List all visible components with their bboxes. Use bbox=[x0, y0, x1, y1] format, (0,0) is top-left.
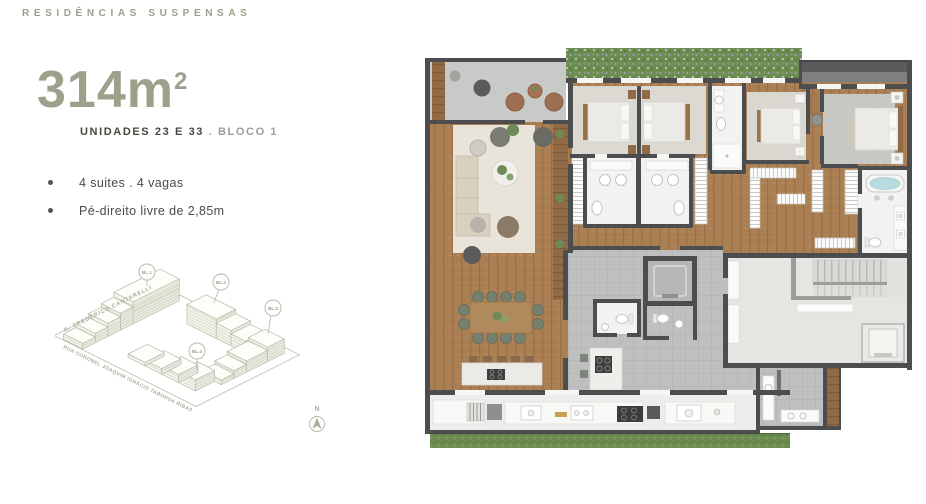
block-label-bl2: BL.2 bbox=[213, 274, 229, 303]
block-label-bl3: BL.3 bbox=[265, 300, 281, 334]
service-balcony bbox=[430, 395, 760, 430]
terrace-top-right bbox=[802, 62, 908, 84]
bedroom-2 bbox=[641, 86, 706, 154]
feature-ceiling: Pé-direito livre de 2,85m bbox=[48, 204, 224, 218]
bullet-icon bbox=[48, 208, 53, 213]
terrace-top-left bbox=[425, 60, 566, 122]
brand-header: RESIDÊNCIAS SUSPENSAS bbox=[22, 8, 251, 19]
units-line: UNIDADES 23 E 33 . BLOCO 1 bbox=[80, 126, 278, 138]
area-title: 314m2 bbox=[37, 64, 188, 116]
block-label: . BLOCO 1 bbox=[209, 126, 278, 138]
bullet-icon bbox=[48, 180, 53, 185]
area-exponent: 2 bbox=[174, 68, 188, 95]
svg-text:BL.1: BL.1 bbox=[142, 270, 152, 275]
bedroom-1 bbox=[572, 86, 637, 154]
iso-buildings bbox=[55, 269, 299, 406]
corridor-bathroom bbox=[712, 86, 742, 170]
hedge bbox=[430, 433, 790, 448]
green-roof-strip bbox=[566, 48, 802, 78]
compass-north-icon: N bbox=[310, 406, 325, 432]
elevator bbox=[648, 261, 692, 301]
svg-text:N: N bbox=[314, 406, 319, 413]
svg-text:BL.3: BL.3 bbox=[268, 306, 278, 311]
area-value: 314m bbox=[37, 61, 174, 119]
feature-suites: 4 suites . 4 vagas bbox=[48, 176, 183, 190]
master-bedroom bbox=[823, 92, 903, 164]
floor-plan bbox=[425, 48, 913, 452]
units-label: UNIDADES 23 E 33 bbox=[80, 126, 204, 138]
master-bathroom bbox=[862, 170, 907, 253]
brochure-page: RESIDÊNCIAS SUSPENSAS 314m2 UNIDADES 23 … bbox=[0, 0, 926, 504]
svg-text:BL.2: BL.2 bbox=[216, 280, 226, 285]
svg-text:BL.4: BL.4 bbox=[192, 349, 202, 354]
site-plan-diagram: R. FREDERICO CANTARELLI RUA CORONEL JOAQ… bbox=[55, 258, 365, 458]
